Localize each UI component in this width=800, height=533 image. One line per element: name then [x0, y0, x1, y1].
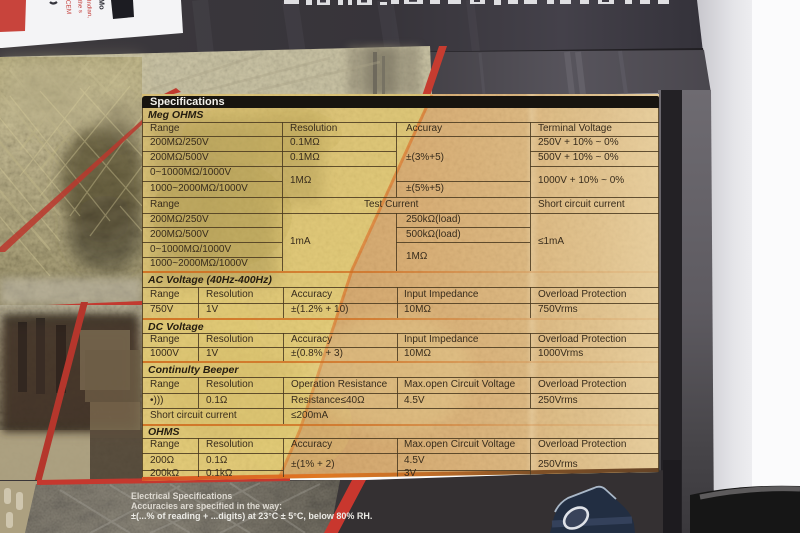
- svg-text:the s: the s: [76, 0, 83, 13]
- svg-text:Mo: Mo: [97, 0, 107, 10]
- svg-text:CEM: CEM: [64, 0, 72, 15]
- svg-text:Indian,: Indian,: [85, 0, 92, 18]
